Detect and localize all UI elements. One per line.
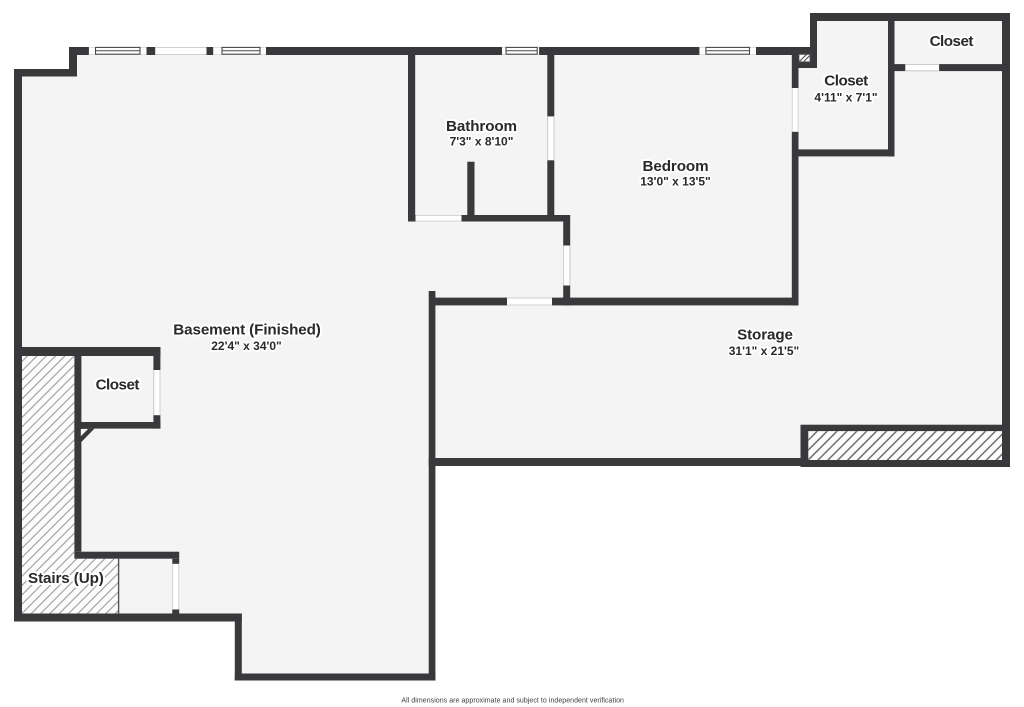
svg-text:22'4" x 34'0": 22'4" x 34'0" xyxy=(211,339,281,353)
svg-text:Closet: Closet xyxy=(96,377,140,394)
svg-text:Closet: Closet xyxy=(824,72,868,89)
svg-text:All dimensions are approximate: All dimensions are approximate and subje… xyxy=(401,698,624,705)
svg-text:Basement (Finished): Basement (Finished) xyxy=(173,322,321,339)
svg-text:31'1" x 21'5": 31'1" x 21'5" xyxy=(729,344,799,358)
svg-text:13'0" x 13'5": 13'0" x 13'5" xyxy=(640,175,710,189)
svg-text:Stairs (Up): Stairs (Up) xyxy=(28,570,104,587)
svg-text:Bedroom: Bedroom xyxy=(643,158,709,175)
svg-text:Closet: Closet xyxy=(930,33,974,50)
svg-text:Storage: Storage xyxy=(737,326,793,343)
svg-text:4'11" x 7'1": 4'11" x 7'1" xyxy=(814,91,877,105)
svg-text:7'3" x 8'10": 7'3" x 8'10" xyxy=(450,135,514,149)
svg-text:Bathroom: Bathroom xyxy=(446,118,517,135)
